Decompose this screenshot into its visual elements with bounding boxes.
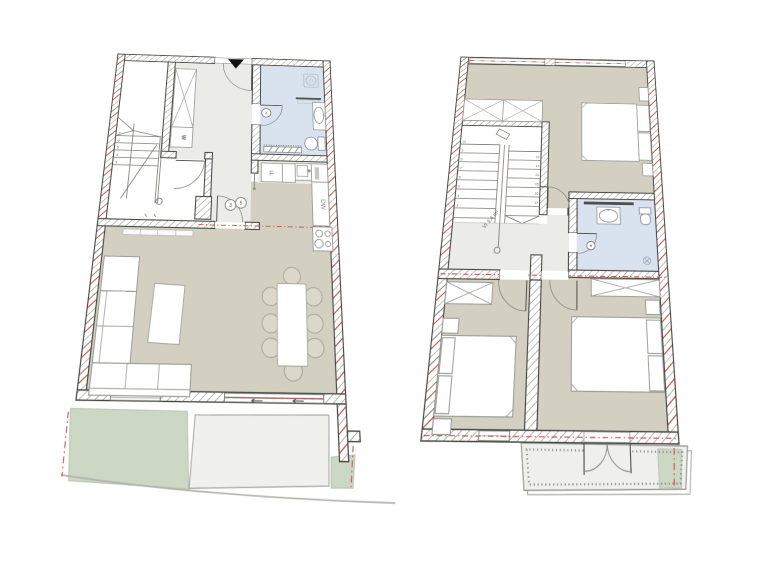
svg-text:17: 17 [534,201,538,206]
svg-text:12: 12 [536,155,540,159]
svg-text:13: 13 [535,164,539,168]
svg-text:14: 14 [535,173,539,177]
svg-text:F: F [269,170,274,178]
svg-text:DW: DW [319,199,326,211]
svg-text:16: 16 [535,191,539,196]
svg-text:10: 10 [462,140,466,144]
svg-text:15: 15 [535,182,539,186]
